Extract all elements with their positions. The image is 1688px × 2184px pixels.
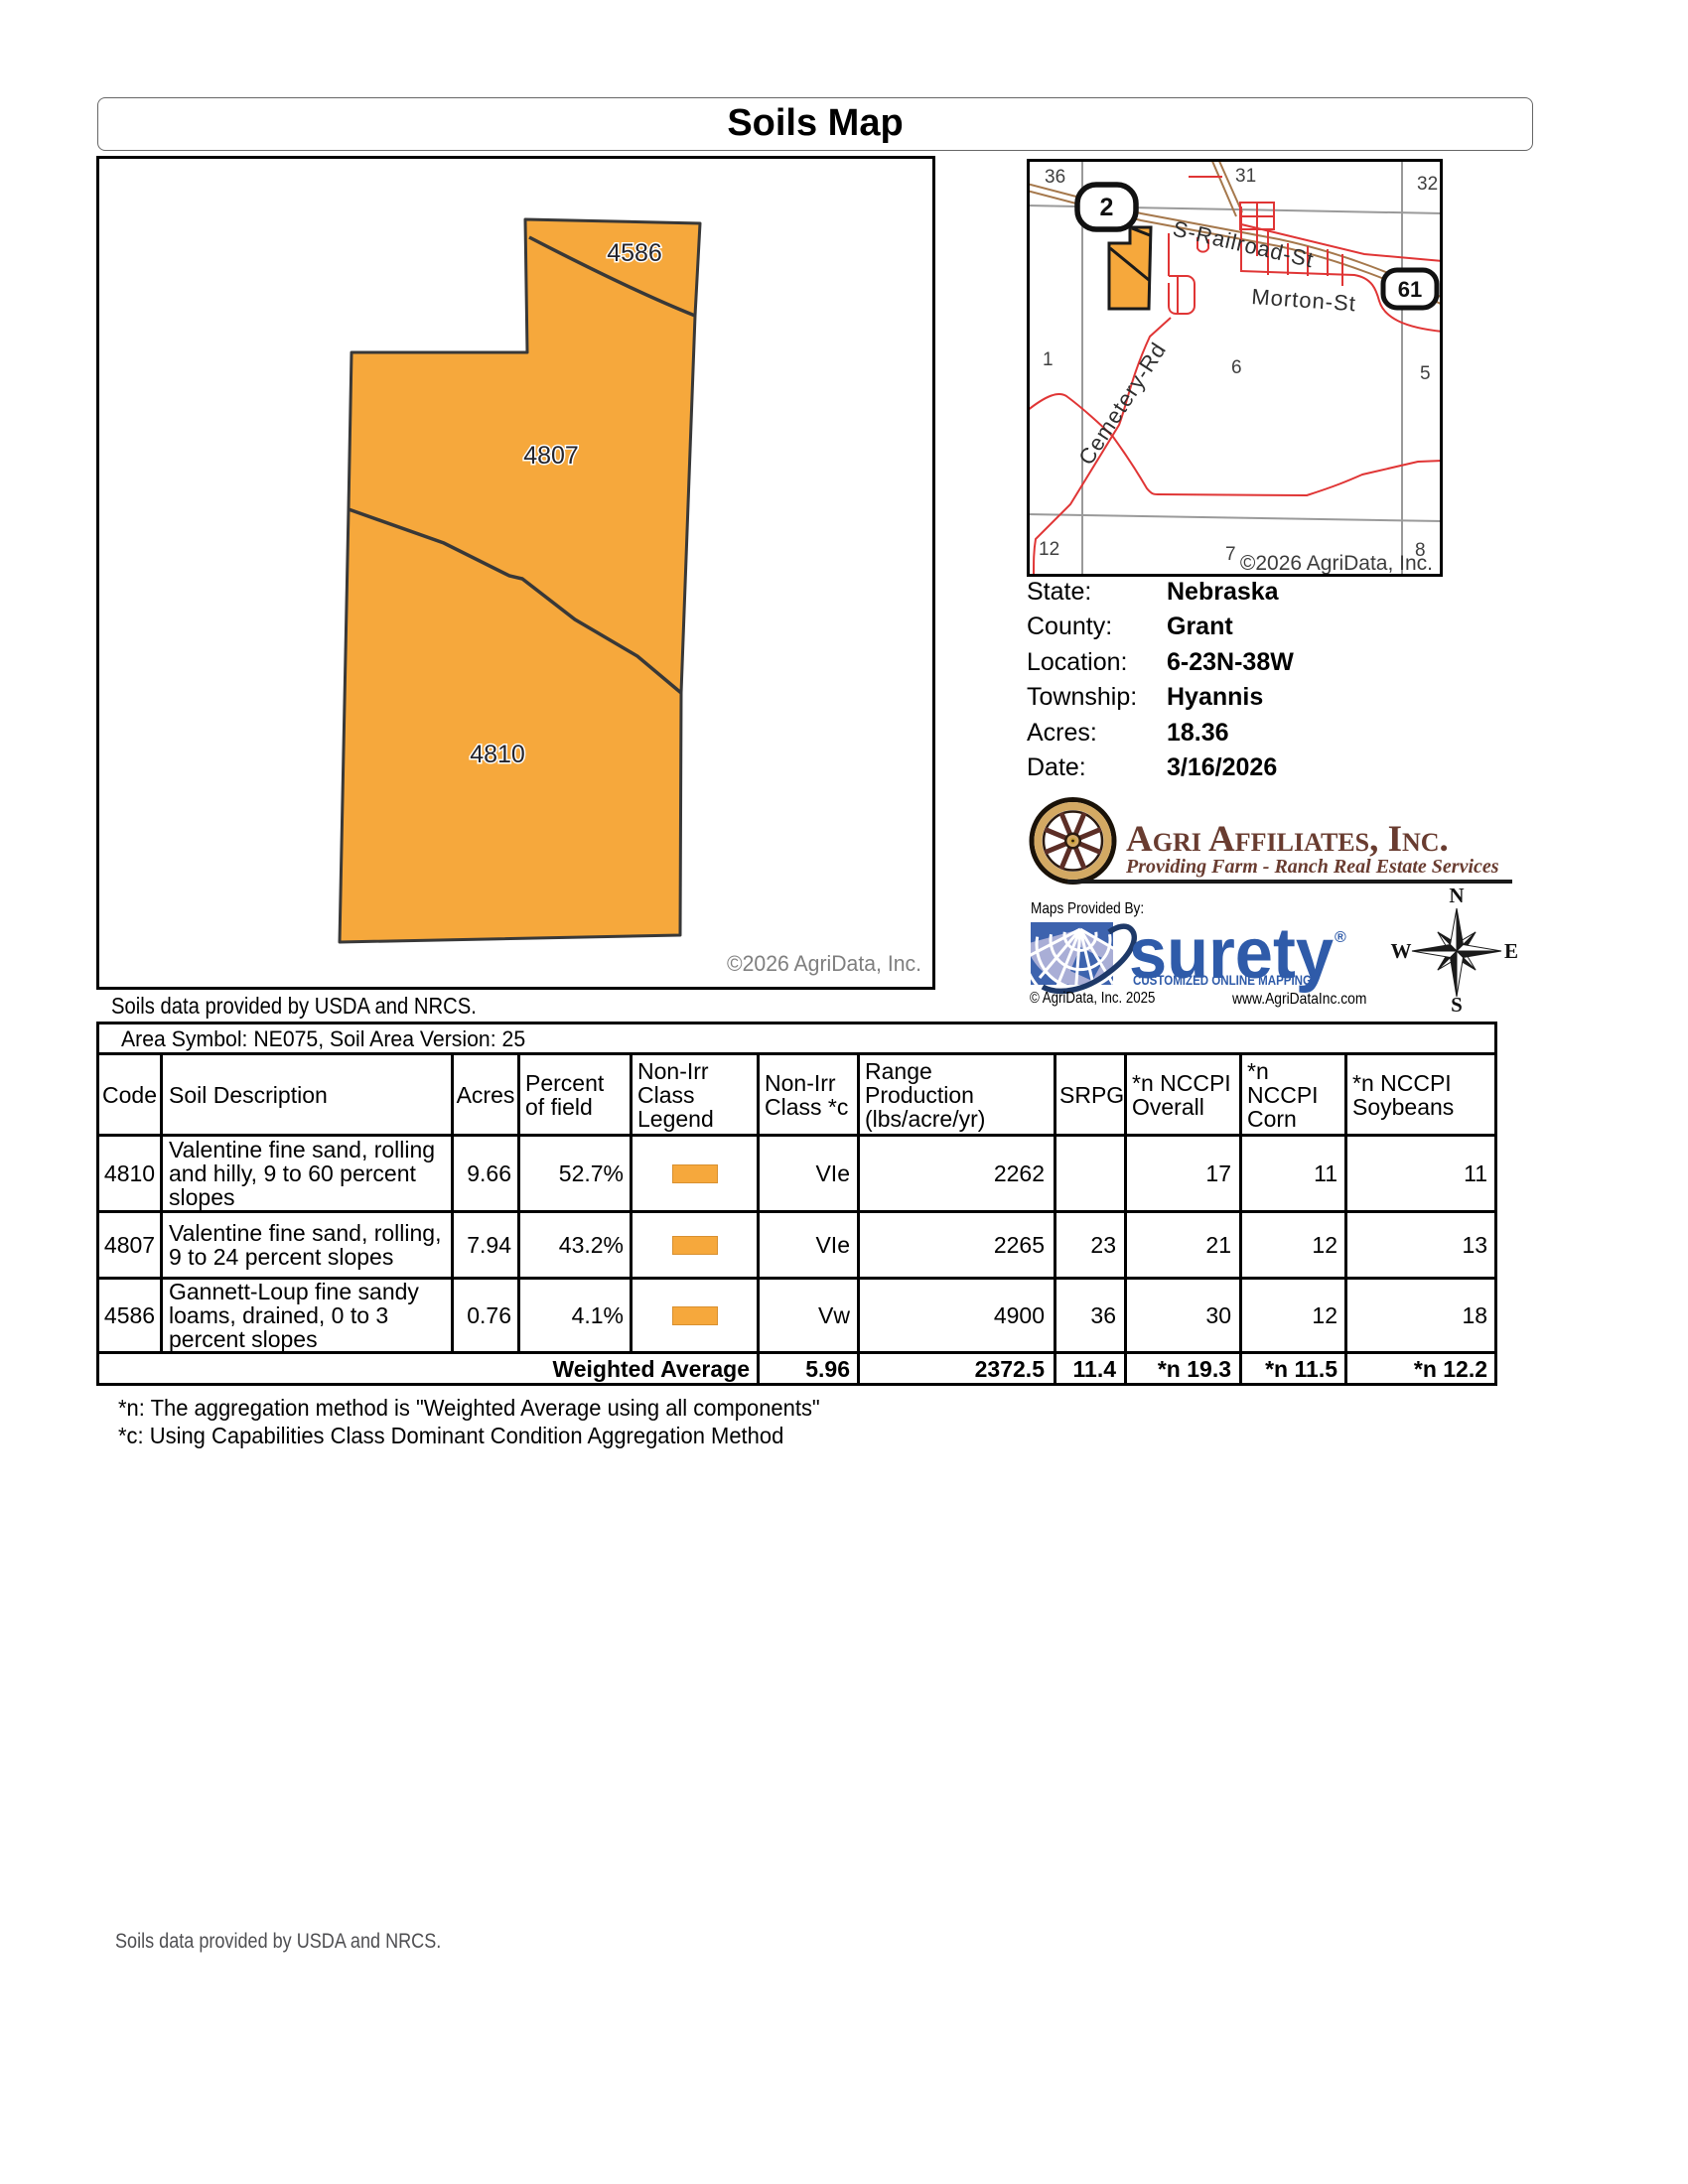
svg-text:N: N	[1449, 887, 1464, 907]
svg-text:2: 2	[1100, 194, 1114, 221]
svg-text:31: 31	[1235, 166, 1256, 187]
svg-text:7: 7	[1225, 544, 1236, 565]
svg-text:S: S	[1451, 993, 1463, 1017]
svg-text:®: ®	[1335, 929, 1346, 946]
svg-text:12: 12	[1039, 539, 1059, 560]
svg-text:32: 32	[1417, 174, 1438, 195]
svg-text:36: 36	[1045, 167, 1065, 188]
svg-text:5: 5	[1420, 363, 1431, 384]
svg-text:6: 6	[1231, 357, 1242, 378]
svg-text:1: 1	[1043, 349, 1054, 370]
svg-text:4810: 4810	[470, 741, 525, 768]
svg-text:©2026 AgriData, Inc.: ©2026 AgriData, Inc.	[1240, 552, 1433, 575]
svg-text:4586: 4586	[607, 239, 662, 267]
svg-text:W: W	[1391, 939, 1412, 963]
svg-text:CUSTOMIZED ONLINE MAPPING: CUSTOMIZED ONLINE MAPPING	[1133, 972, 1312, 988]
svg-text:61: 61	[1398, 277, 1422, 302]
svg-text:4807: 4807	[523, 442, 579, 470]
svg-text:©2026 AgriData, Inc.: ©2026 AgriData, Inc.	[727, 951, 921, 976]
svg-text:E: E	[1504, 939, 1518, 963]
